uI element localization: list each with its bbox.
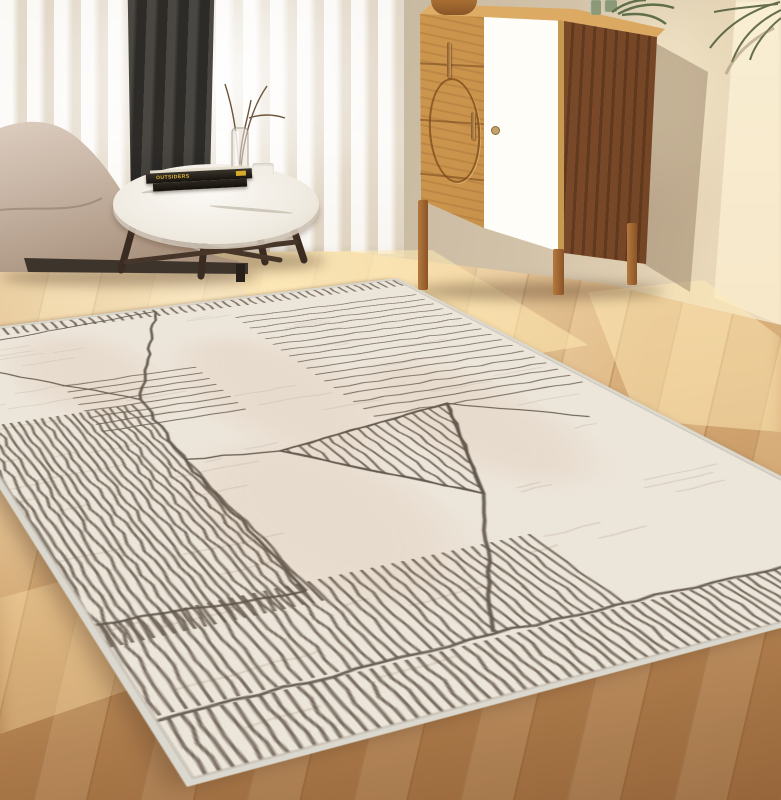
- book-spine-label: OUTSIDERS: [156, 173, 190, 181]
- vase-highlight: [235, 131, 239, 169]
- plant-leaves: [612, 0, 674, 24]
- cabinet-leg: [418, 200, 428, 290]
- frond-shadow: [726, 28, 774, 74]
- book-spine-accent: [236, 171, 246, 177]
- cabinet-leg: [553, 249, 564, 295]
- twig: [249, 115, 285, 118]
- cabinet-handle: [447, 42, 451, 78]
- cabinet-handle: [471, 112, 475, 140]
- living-room-photo: OUTSIDERS: [0, 0, 781, 800]
- palm-frond: [710, 2, 781, 62]
- candle-bowl: [252, 163, 274, 176]
- plants: [598, 0, 781, 80]
- cabinet-shadow: [412, 282, 664, 300]
- marble-vein: [209, 204, 293, 214]
- cabinet-leg: [627, 223, 637, 285]
- cabinet-door-knob: [491, 126, 500, 135]
